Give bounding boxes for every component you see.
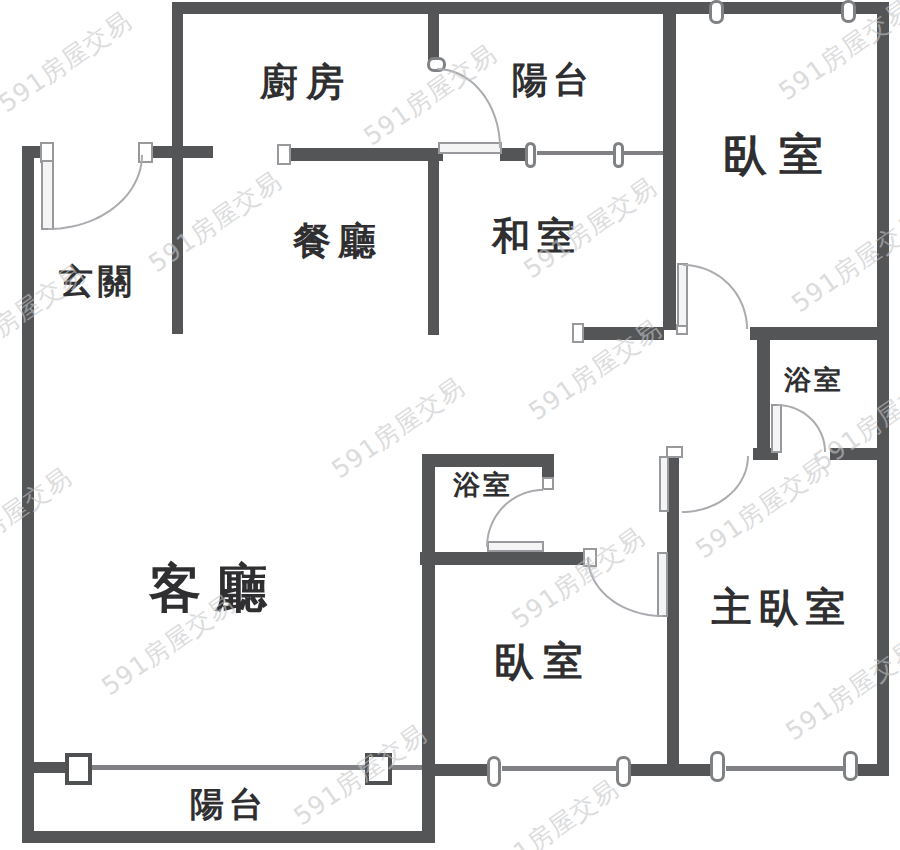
wall-segment bbox=[172, 8, 183, 334]
window-glass-line bbox=[726, 766, 844, 771]
watermark-text: 591房屋交易 bbox=[505, 520, 651, 636]
window-pill bbox=[710, 751, 725, 782]
watermark-text: 591房屋交易 bbox=[142, 164, 288, 280]
room-label-dining: 餐廳 bbox=[293, 216, 383, 267]
room-label-bedroom-bottom: 臥室 bbox=[494, 634, 592, 689]
window-pill bbox=[843, 751, 858, 781]
room-label-bedroom-top-right: 臥室 bbox=[723, 126, 835, 185]
room-label-bath-upper: 浴室 bbox=[784, 362, 844, 398]
wall-segment bbox=[28, 831, 435, 843]
wall-segment bbox=[631, 764, 712, 776]
door-swing-arc bbox=[48, 155, 142, 229]
door-leaf bbox=[41, 160, 54, 230]
watermark-text: 591房屋交易 bbox=[0, 4, 138, 120]
door-leaf bbox=[487, 541, 544, 552]
door-leaf bbox=[438, 142, 502, 154]
window-pill bbox=[709, 0, 724, 24]
door-leaf bbox=[771, 404, 782, 453]
room-label-master-bedroom: 主臥室 bbox=[712, 580, 853, 635]
window-pill bbox=[616, 756, 631, 787]
floor-plan: 廚房陽台臥室餐廳和室玄關浴室浴室客廳主臥室臥室陽台591房屋交易591房屋交易5… bbox=[0, 0, 900, 850]
wall-segment bbox=[500, 148, 528, 161]
window-pill bbox=[841, 0, 856, 23]
window-pill bbox=[525, 142, 536, 168]
door-jamb bbox=[277, 144, 291, 165]
window-pill bbox=[487, 756, 501, 787]
window-glass-line bbox=[502, 766, 617, 771]
wall-segment bbox=[422, 454, 554, 467]
door-swing-arc bbox=[683, 265, 747, 329]
wall-segment bbox=[422, 454, 435, 843]
door-jamb bbox=[542, 477, 554, 490]
room-label-balcony-top: 陽台 bbox=[512, 56, 594, 105]
door-leaf bbox=[659, 456, 669, 512]
room-label-kitchen: 廚房 bbox=[260, 57, 352, 108]
door-leaf bbox=[677, 263, 688, 327]
window-pill bbox=[613, 142, 624, 168]
window-glass-line bbox=[624, 151, 664, 155]
wall-segment bbox=[34, 762, 67, 773]
wall-segment bbox=[435, 764, 491, 776]
wall-segment bbox=[428, 8, 439, 62]
window-glass-line bbox=[92, 765, 366, 770]
wall-segment bbox=[420, 552, 587, 565]
wall-segment bbox=[172, 2, 889, 14]
room-label-balcony-bottom: 陽台 bbox=[190, 782, 268, 828]
wall-segment bbox=[757, 333, 770, 460]
watermark-text: 591房屋交易 bbox=[689, 450, 835, 566]
door-jamb bbox=[572, 323, 584, 343]
wall-segment bbox=[663, 2, 676, 330]
watermark-text: 591房屋交易 bbox=[287, 717, 433, 833]
watermark-text: 591房屋交易 bbox=[0, 460, 78, 576]
door-jamb bbox=[138, 142, 153, 163]
room-label-bath-lower: 浴室 bbox=[453, 467, 513, 503]
watermark-text: 591房屋交易 bbox=[479, 772, 625, 850]
watermark-text: 591房屋交易 bbox=[0, 257, 91, 373]
window-glass-line bbox=[537, 151, 615, 155]
window-box bbox=[65, 753, 92, 785]
door-leaf bbox=[657, 552, 668, 617]
wall-segment bbox=[281, 148, 443, 161]
watermark-text: 591房屋交易 bbox=[325, 370, 471, 486]
wall-segment bbox=[428, 148, 439, 335]
wall-segment bbox=[750, 327, 889, 340]
